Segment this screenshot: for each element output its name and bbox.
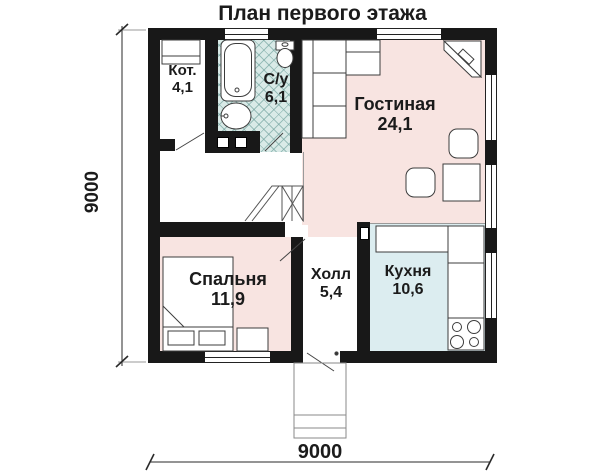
room-area: 5,4 [304, 284, 358, 302]
nightstand [237, 328, 268, 351]
pillow [168, 331, 194, 345]
entrance-door-swing [307, 353, 334, 371]
room-label-kitchen: Кухня 10,6 [369, 263, 447, 299]
room-area: 10,6 [369, 281, 447, 299]
entrance-door-hinge [335, 352, 338, 355]
stove [448, 318, 484, 350]
room-name: Кухня [369, 263, 447, 281]
room-area: 11,9 [160, 289, 296, 309]
room-name: Спальня [160, 269, 296, 289]
room-name: Кот. [155, 63, 210, 80]
dimension-vertical: 9000 [82, 166, 126, 218]
chair-left [406, 168, 435, 197]
plan-title: План первого этажа [148, 2, 497, 26]
room-name: Холл [304, 266, 358, 284]
dining-table [443, 164, 480, 201]
sink [221, 103, 251, 129]
room-label-boiler: Кот. 4,1 [155, 63, 210, 97]
floor-plan: План первого этажа Кот. 4,1 С/у 6,1 Гост… [0, 0, 600, 471]
room-label-bathroom: С/у 6,1 [250, 71, 302, 107]
room-area: 24,1 [325, 114, 465, 134]
room-label-bedroom: Спальня 11,9 [160, 269, 296, 309]
boiler-door-swing [176, 133, 204, 150]
room-name: С/у [250, 71, 302, 89]
corner-desk [444, 41, 481, 77]
bathroom-door-swing [265, 133, 283, 151]
pillow [199, 331, 225, 345]
bedroom-door-swing [280, 239, 305, 261]
boiler-unit [162, 40, 200, 64]
dimension-horizontal: 9000 [270, 441, 370, 464]
stairs [245, 186, 303, 221]
porch-steps [294, 363, 346, 438]
room-area: 6,1 [250, 89, 302, 107]
room-area: 4,1 [155, 80, 210, 97]
room-label-living: Гостиная 24,1 [325, 94, 465, 134]
room-label-hall: Холл 5,4 [304, 266, 358, 302]
toilet [276, 41, 294, 68]
room-name: Гостиная [325, 94, 465, 114]
